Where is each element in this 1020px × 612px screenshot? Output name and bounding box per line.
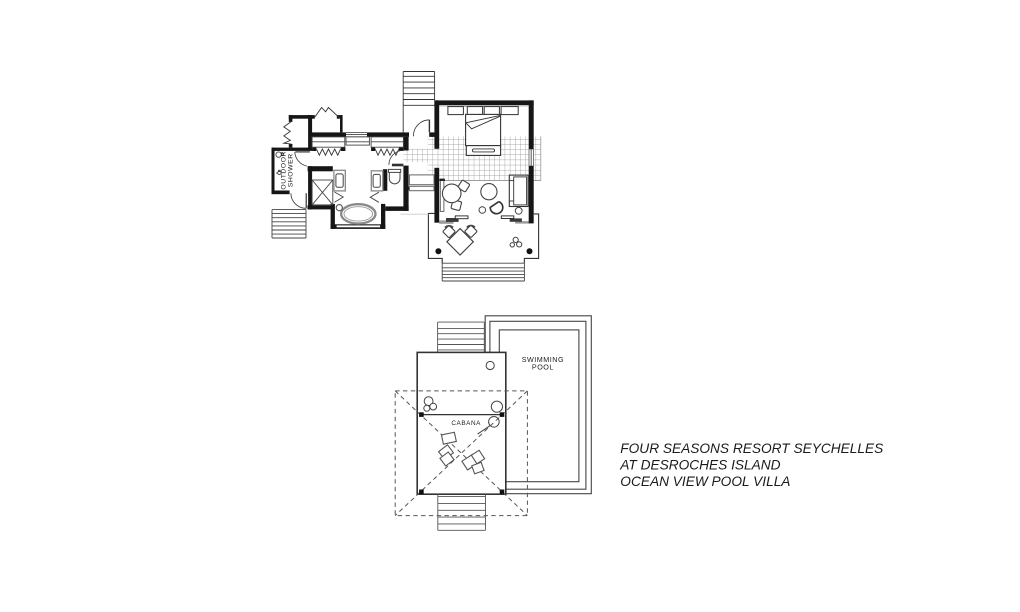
svg-text:POOL: POOL xyxy=(532,363,554,372)
svg-text:CABANA: CABANA xyxy=(451,420,481,427)
svg-text:OCEAN VIEW POOL VILLA: OCEAN VIEW POOL VILLA xyxy=(620,474,790,489)
svg-text:SHOWER: SHOWER xyxy=(287,153,294,187)
svg-text:FOUR SEASONS RESORT SEYCHELLES: FOUR SEASONS RESORT SEYCHELLES xyxy=(620,441,883,456)
svg-text:AT DESROCHES ISLAND: AT DESROCHES ISLAND xyxy=(619,458,780,473)
